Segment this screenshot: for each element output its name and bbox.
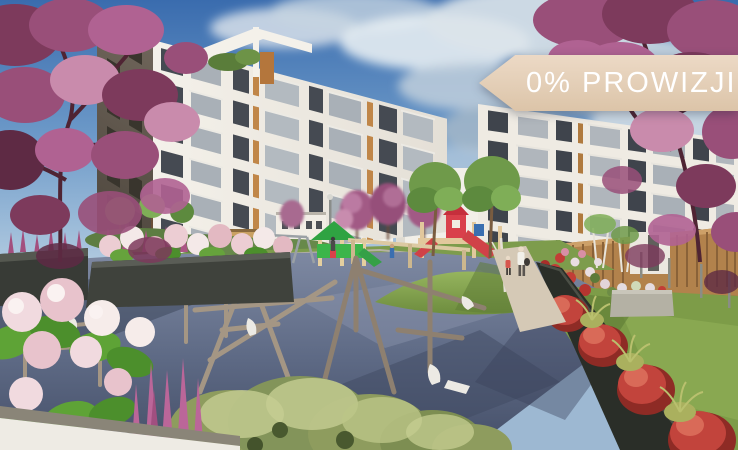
real-estate-render: 0% PROWIZJI <box>0 0 738 450</box>
promo-banner-ribbon: 0% PROWIZJI <box>479 55 738 111</box>
promo-banner: 0% PROWIZJI <box>479 55 738 111</box>
promo-banner-label: 0% PROWIZJI <box>526 69 737 98</box>
